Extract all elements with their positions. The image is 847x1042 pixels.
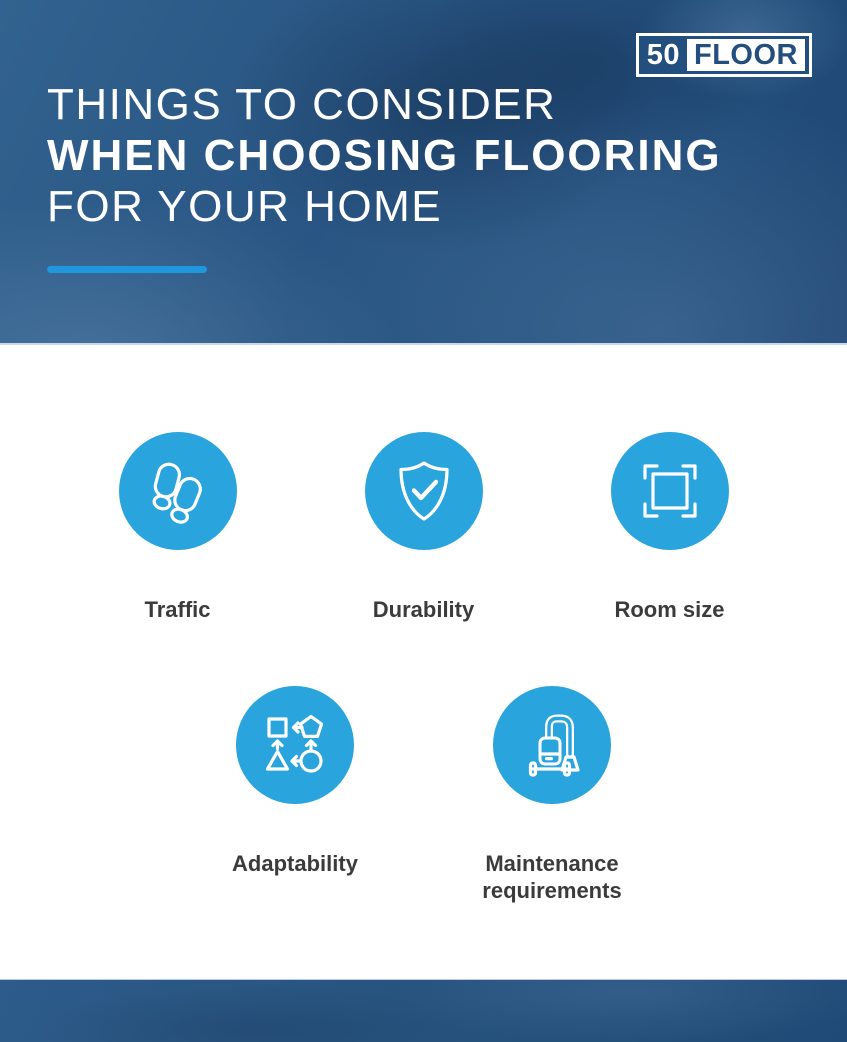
consideration-item-adaptability: Adaptability bbox=[210, 686, 380, 904]
title-line-2: WHEN CHOOSING FLOORING bbox=[47, 130, 722, 181]
item-label: Traffic bbox=[144, 596, 210, 623]
accent-underline bbox=[47, 266, 207, 273]
consideration-item-room-size: Room size bbox=[600, 432, 740, 623]
icon-circle bbox=[611, 432, 729, 550]
item-label: Room size bbox=[614, 596, 724, 623]
icon-circle bbox=[493, 686, 611, 804]
consideration-item-traffic: Traffic bbox=[108, 432, 248, 623]
icons-row-1: Traffic Durability Room s bbox=[0, 345, 847, 623]
footprints-icon bbox=[144, 457, 212, 525]
icon-circle bbox=[119, 432, 237, 550]
item-label: Durability bbox=[373, 596, 474, 623]
footer-bar bbox=[0, 979, 847, 1042]
logo-word: FLOOR bbox=[687, 39, 805, 71]
vacuum-cleaner-icon bbox=[518, 711, 586, 779]
icon-circle bbox=[365, 432, 483, 550]
page-title: THINGS TO CONSIDER WHEN CHOOSING FLOORIN… bbox=[47, 79, 722, 232]
title-line-3: FOR YOUR HOME bbox=[47, 181, 722, 232]
shield-check-icon bbox=[390, 457, 458, 525]
item-label: Adaptability bbox=[232, 850, 358, 877]
adaptability-shapes-icon bbox=[261, 711, 329, 779]
logo-number: 50 bbox=[643, 39, 685, 71]
considerations-section: Traffic Durability Room s bbox=[0, 345, 847, 979]
brand-logo: 50 FLOOR bbox=[636, 33, 812, 77]
icons-row-2: Adaptability Maintenance requirements bbox=[0, 686, 847, 904]
item-label: Maintenance requirements bbox=[467, 850, 637, 904]
title-line-1: THINGS TO CONSIDER bbox=[47, 79, 722, 130]
room-size-icon bbox=[636, 457, 704, 525]
icon-circle bbox=[236, 686, 354, 804]
consideration-item-maintenance: Maintenance requirements bbox=[467, 686, 637, 904]
hero-header: 50 FLOOR THINGS TO CONSIDER WHEN CHOOSIN… bbox=[0, 0, 847, 345]
consideration-item-durability: Durability bbox=[354, 432, 494, 623]
